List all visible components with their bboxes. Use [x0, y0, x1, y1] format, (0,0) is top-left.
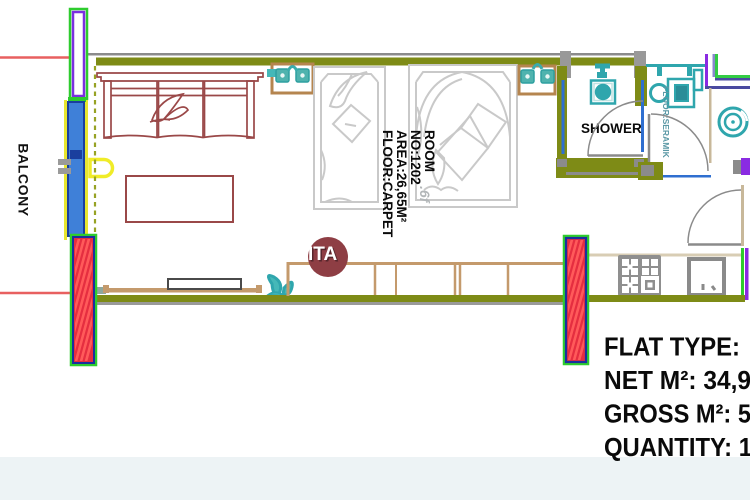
svg-text:ROOM: ROOM — [422, 130, 437, 172]
svg-text:SHOWER: SHOWER — [581, 121, 642, 136]
svg-text:.6f: .6f — [417, 186, 433, 204]
svg-text:NET M²: 34,9: NET M²: 34,9 — [604, 365, 750, 395]
svg-text:FLOOR:CARPET: FLOOR:CARPET — [380, 130, 395, 238]
svg-text:ITA: ITA — [308, 244, 337, 265]
svg-text:FLOOR:SERAMIK: FLOOR:SERAMIK — [661, 86, 671, 159]
svg-text:AREA:26,65M²: AREA:26,65M² — [394, 130, 409, 223]
svg-text:FLAT TYPE:: FLAT TYPE: — [604, 332, 740, 362]
svg-text:QUANTITY: 1: QUANTITY: 1 — [604, 432, 750, 462]
svg-text:GROSS M²: 5: GROSS M²: 5 — [604, 399, 750, 429]
svg-text:NO:1202: NO:1202 — [408, 130, 423, 185]
svg-text:BALCONY: BALCONY — [15, 143, 31, 216]
